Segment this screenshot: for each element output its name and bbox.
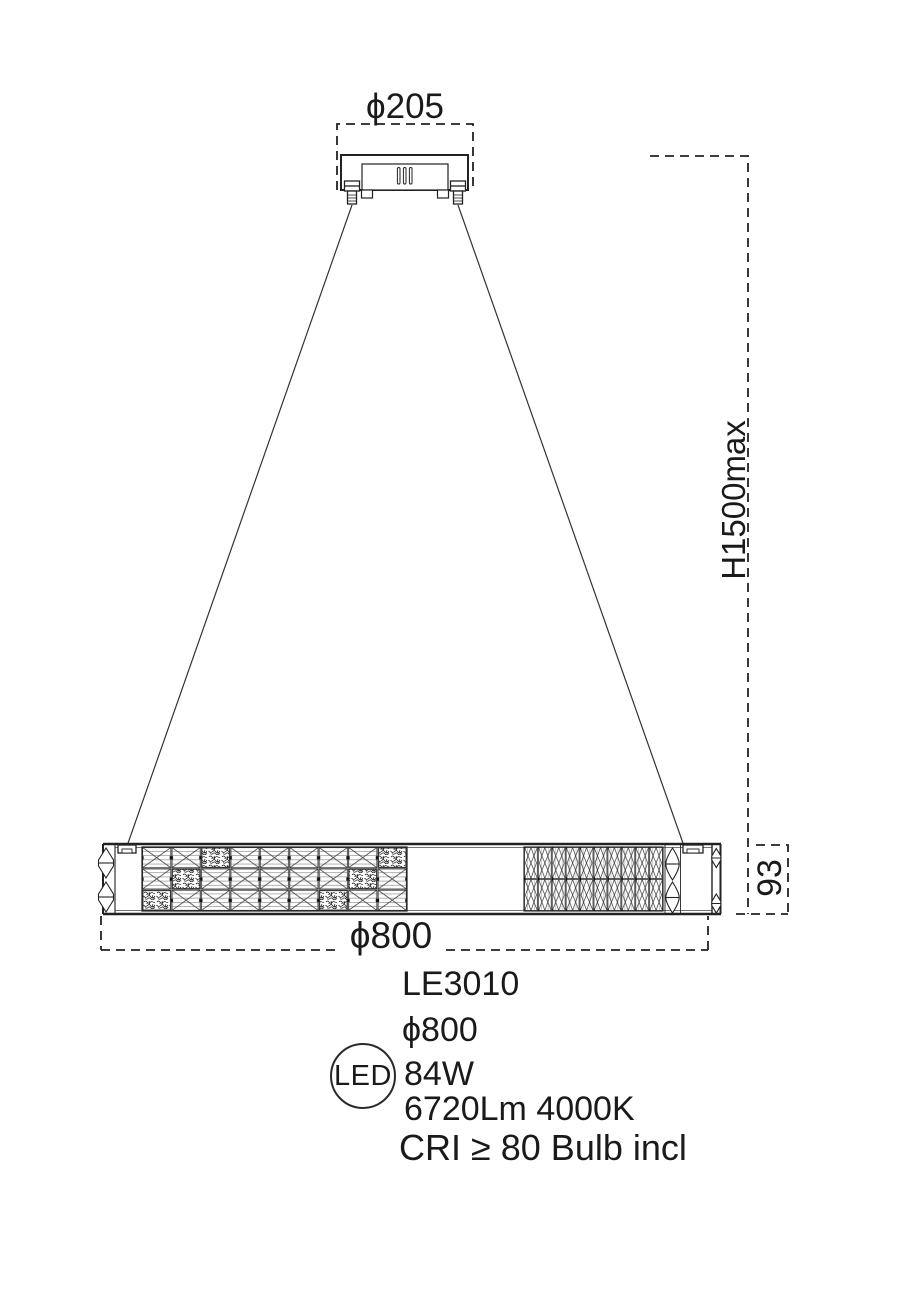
crystal-band-front: [142, 847, 407, 911]
technical-drawing-page: { "drawing": { "canopy_diameter_label": …: [0, 0, 919, 1300]
product-wattage: 84W: [404, 1057, 474, 1091]
dimension-fixture-height-label: 93: [751, 859, 789, 897]
crystal-band-rear: [524, 847, 663, 911]
product-lumens-cct: 6720Lm 4000K: [404, 1092, 635, 1126]
canopy-vent-slots: [397, 168, 412, 185]
wire-mount-left: [118, 845, 136, 853]
left-end-crystal-finials: [99, 848, 114, 912]
led-badge: LED: [330, 1043, 396, 1109]
canopy-mount-feet: [362, 190, 449, 198]
product-model: LE3010: [402, 967, 519, 1001]
dimension-fixture-diameter-label: ϕ800: [350, 915, 432, 956]
product-cri-note: CRI ≥ 80 Bulb incl: [399, 1130, 687, 1166]
dimension-fixture-diameter: ϕ800: [101, 915, 708, 957]
suspension-wire-right: [458, 205, 684, 846]
led-badge-label: LED: [334, 1060, 392, 1093]
right-end-crystal-lenses: [665, 845, 681, 913]
wire-mount-right: [683, 845, 703, 853]
product-diameter: ϕ800: [402, 1013, 478, 1047]
canopy-cable-gripper-left: [345, 181, 360, 204]
ceiling-canopy: [341, 155, 468, 204]
dimension-hanging-height: H1500max: [650, 156, 788, 914]
suspension-wire-left: [127, 205, 352, 846]
dimension-canopy-diameter-label: ϕ205: [366, 87, 444, 126]
canopy-cable-gripper-right: [451, 181, 466, 204]
dimension-fixture-height: 93: [751, 845, 789, 914]
dimension-hanging-height-label: H1500max: [715, 420, 752, 580]
pendant-fixture: [99, 844, 722, 914]
fixture-right-rim: [712, 844, 721, 914]
